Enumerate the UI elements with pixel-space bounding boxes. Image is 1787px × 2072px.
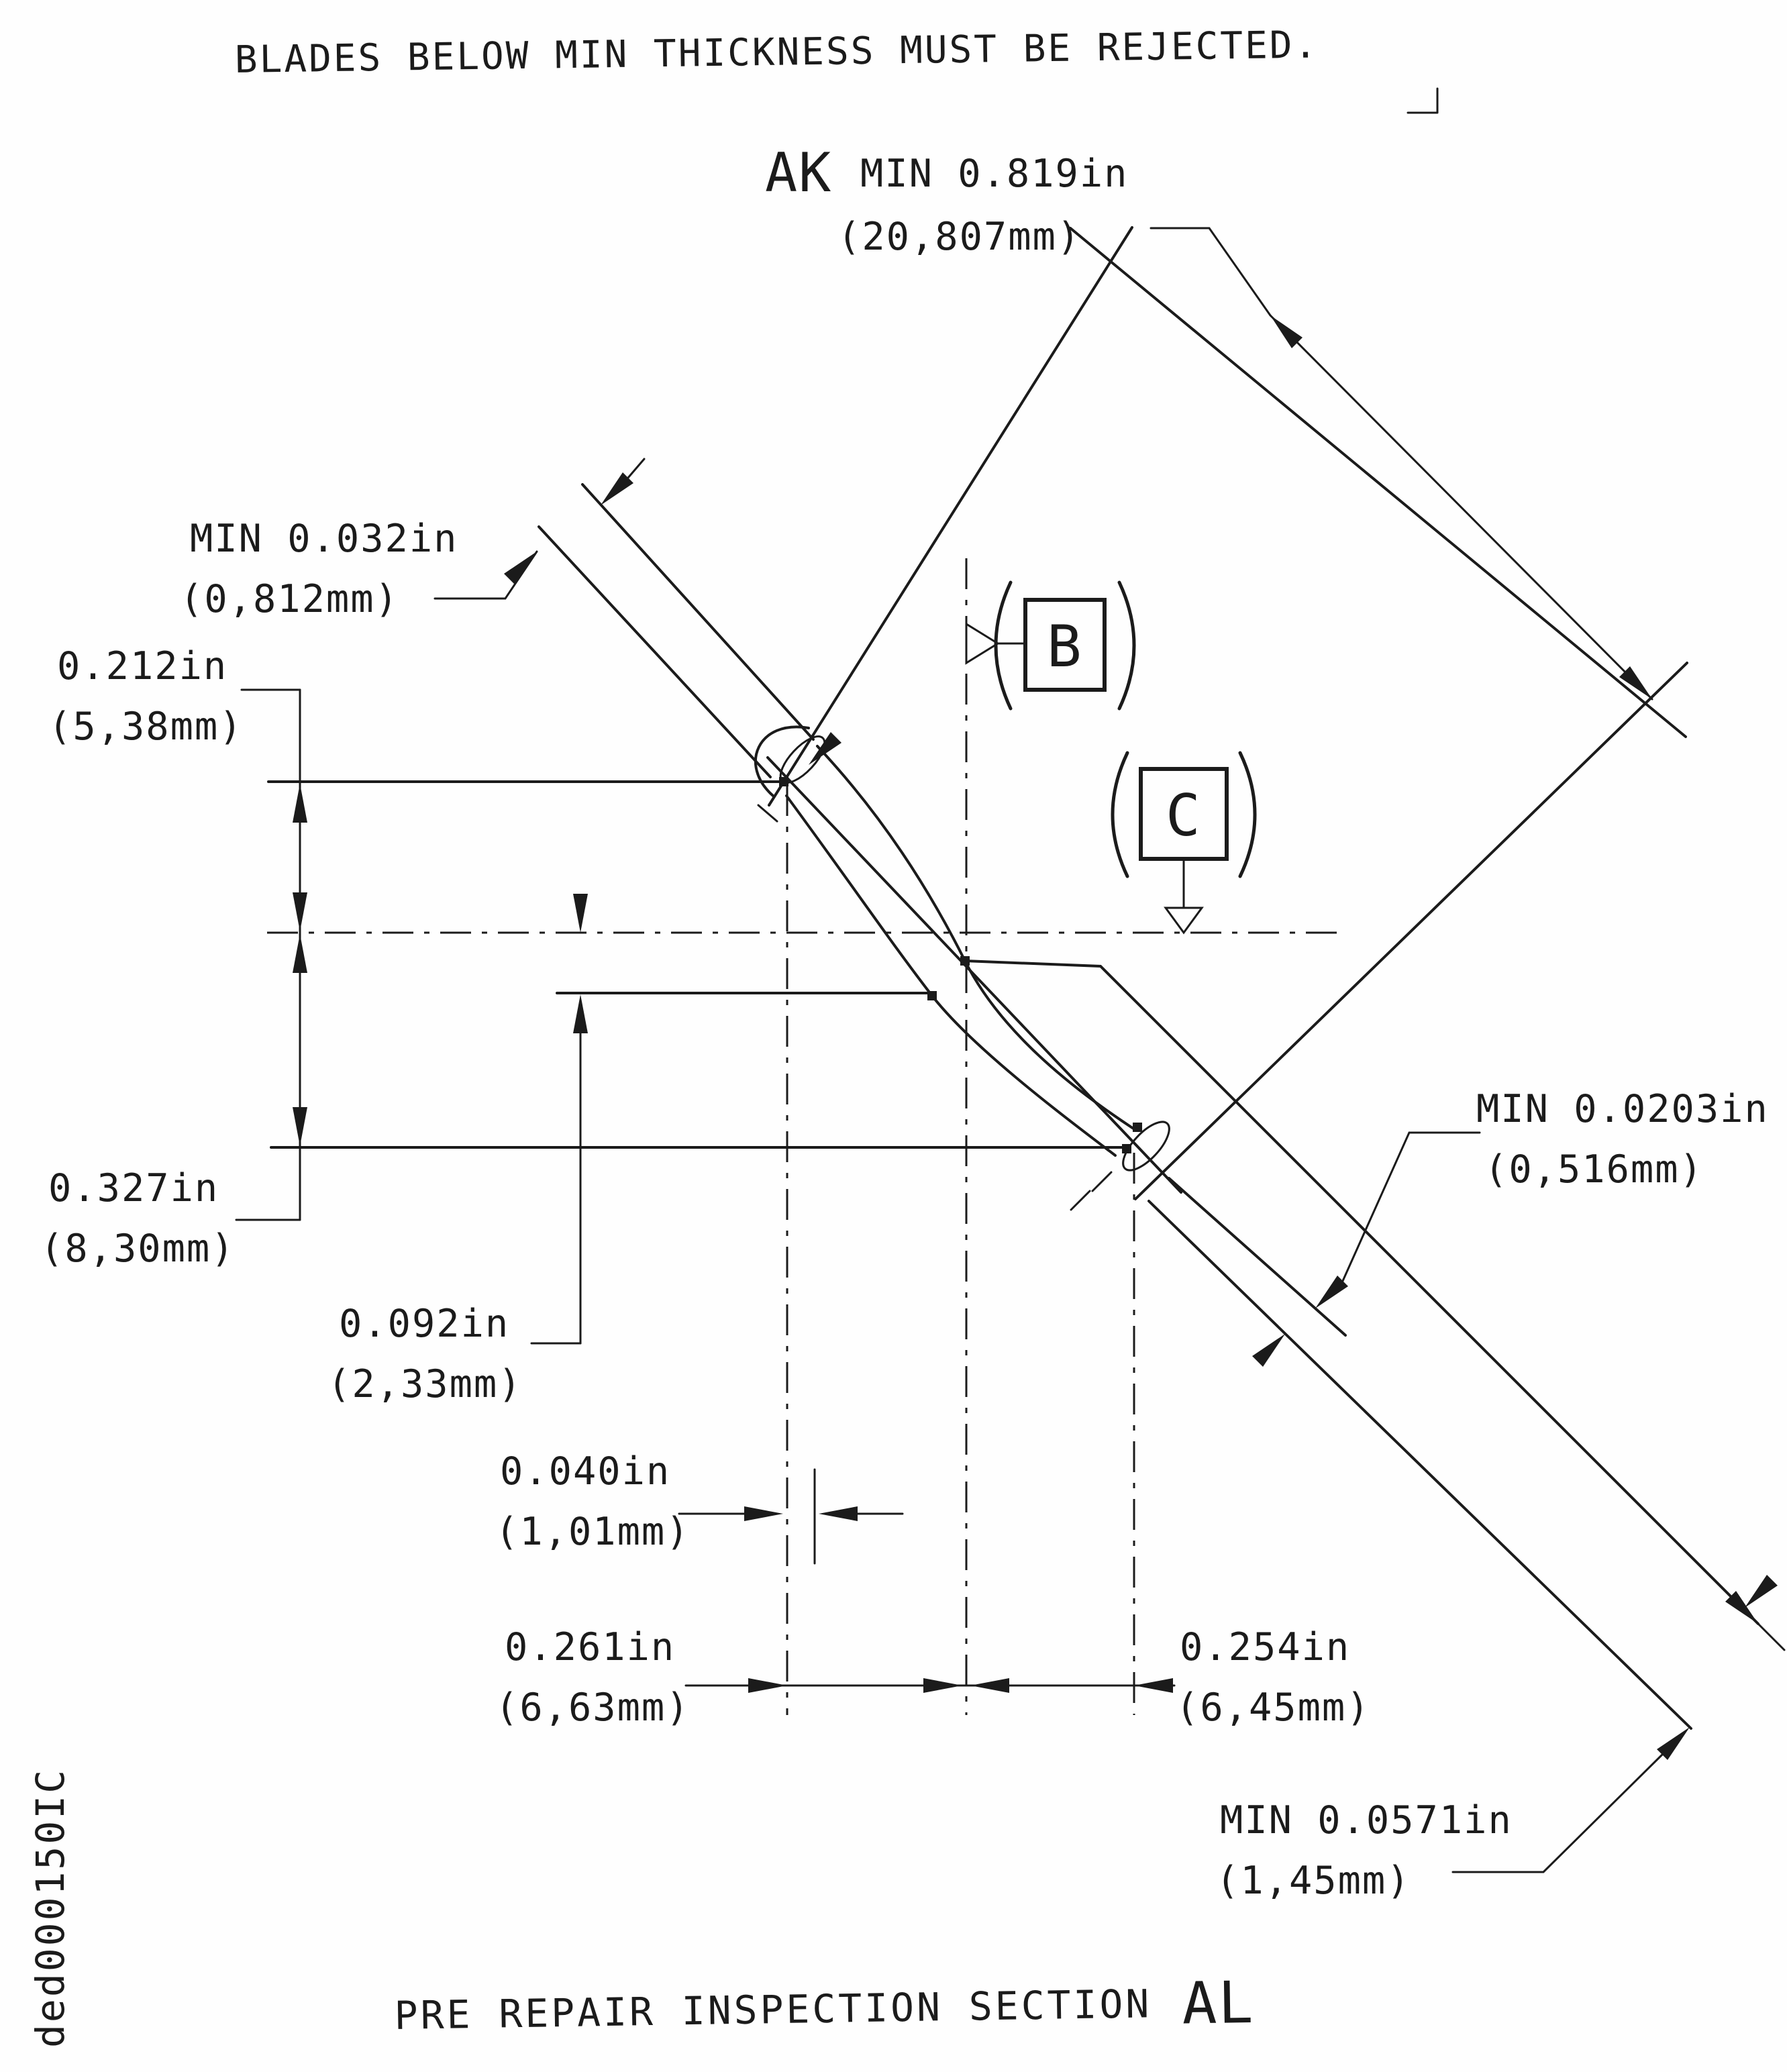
airfoil-upper-surface — [817, 746, 1135, 1130]
point-trailing-edge-lower — [1122, 1144, 1131, 1153]
dim-212-arrow-top — [293, 784, 307, 823]
doc-number: ded000150IC — [28, 1768, 73, 2048]
datum-c-letter: C — [1166, 782, 1201, 849]
pre-repair-inspection-drawing: BLADES BELOW MIN THICKNESS MUST BE REJEC… — [0, 0, 1787, 2072]
dim-092-metric: (2,33mm) — [327, 1362, 523, 1406]
rejection-note-text: BLADES BELOW MIN THICKNESS MUST BE REJEC… — [234, 23, 1319, 82]
dim-tip-min: MIN 0.032in (0,812mm) — [180, 459, 644, 621]
dim-327-value: 0.327in — [48, 1166, 219, 1210]
root-band — [965, 961, 1784, 1728]
trailing-edge-tick-2 — [1071, 1191, 1090, 1210]
dim-tip-min-arrow-tail — [628, 459, 644, 478]
dim-ak-leader — [1151, 228, 1270, 315]
dim-254-metric: (6,45mm) — [1176, 1686, 1371, 1730]
dim-327-arrow-top — [293, 934, 307, 973]
datum-c-triangle — [1166, 908, 1202, 933]
dim-040-metric: (1,01mm) — [495, 1510, 691, 1554]
dim-261-value: 0.261in — [505, 1625, 675, 1669]
dim-te-min-arrow-lower — [1252, 1334, 1285, 1367]
dim-092-value: 0.092in — [339, 1302, 509, 1346]
dim-root-min-arrow-upper — [1745, 1575, 1778, 1608]
dim-261-arrow-left — [748, 1678, 787, 1693]
dim-ak-value: MIN 0.819in — [860, 152, 1129, 196]
dim-261-arrow-right — [923, 1678, 962, 1693]
leading-edge-tick — [758, 805, 777, 821]
rejection-note: BLADES BELOW MIN THICKNESS MUST BE REJEC… — [234, 23, 1319, 82]
dim-254-value: 0.254in — [1180, 1625, 1350, 1669]
dim-root-min-metric: (1,45mm) — [1216, 1859, 1411, 1903]
dim-te-min-metric: (0,516mm) — [1484, 1147, 1704, 1192]
dim-092-arrow-top — [573, 894, 588, 933]
dim-tip-min-metric: (0,812mm) — [180, 577, 399, 621]
diamond-outline — [768, 227, 1687, 1199]
dim-040-arrow-right — [819, 1506, 858, 1521]
datum-b-paren-right — [1119, 582, 1134, 709]
dim-327-metric: (8,30mm) — [40, 1227, 236, 1271]
point-trailing-edge-upper — [1133, 1123, 1142, 1132]
dim-tip-min-arrow-lower — [504, 552, 537, 584]
datum-b-triangle — [966, 624, 998, 663]
dim-root-min-value: MIN 0.0571in — [1220, 1798, 1513, 1843]
datum-c-paren-left — [1113, 753, 1127, 876]
dim-212-arrow-bottom — [293, 892, 307, 931]
dim-092-arrow-bottom — [573, 994, 588, 1033]
dim-327: 0.327in (8,30mm) — [40, 934, 307, 1271]
trailing-strip-upper-line — [1169, 1178, 1345, 1335]
title-stray-tick — [1408, 89, 1437, 113]
dim-chain-261-254: 0.261in (6,63mm) 0.254in (6,45mm) — [495, 1625, 1371, 1730]
dim-212-metric: (5,38mm) — [48, 705, 244, 749]
dim-040: 0.040in (1,01mm) — [495, 1449, 903, 1554]
dim-254-arrow-left — [970, 1678, 1009, 1693]
dim-te-min-leader — [1343, 1133, 1480, 1281]
root-band-upper-line — [965, 961, 1758, 1624]
dim-ak-metric: (20,807mm) — [837, 215, 1081, 259]
dim-root-min: MIN 0.0571in (1,45mm) — [1216, 1575, 1778, 1903]
dim-212-value: 0.212in — [57, 644, 227, 688]
dim-tip-min-value: MIN 0.032in — [190, 517, 458, 561]
dim-261-metric: (6,63mm) — [495, 1686, 691, 1730]
diamond-edge-top-left — [769, 227, 1132, 805]
airfoil-lower-surface — [786, 796, 1115, 1155]
dim-040-arrow-left — [744, 1506, 783, 1521]
caption-text: PRE REPAIR INSPECTION SECTION — [394, 1981, 1152, 2038]
dim-ak: AK MIN 0.819in (20,807mm) — [765, 142, 1652, 699]
dim-092: 0.092in (2,33mm) — [327, 894, 588, 1406]
datum-b-paren-left — [996, 582, 1011, 709]
diamond-edge-bottom-left — [768, 758, 1181, 1192]
blade-tip-band — [539, 484, 841, 821]
datum-c-paren-right — [1240, 753, 1255, 876]
trailing-edge-tick-1 — [1092, 1172, 1111, 1191]
diamond-edge-top-right — [1070, 228, 1686, 737]
engineering-drawing-sheet: BLADES BELOW MIN THICKNESS MUST BE REJEC… — [0, 0, 1787, 2072]
section-id: AL — [1182, 1969, 1255, 2038]
datum-c-flag: C — [1113, 753, 1255, 933]
root-band-upper-ext — [1758, 1624, 1784, 1650]
dim-040-value: 0.040in — [500, 1449, 670, 1494]
dim-ak-prefix: AK — [765, 142, 832, 204]
dim-te-min-value: MIN 0.0203in — [1476, 1087, 1769, 1131]
dim-te-min: MIN 0.0203in (0,516mm) — [1252, 1087, 1769, 1367]
dim-ak-line — [1270, 315, 1652, 699]
drawing-caption: PRE REPAIR INSPECTION SECTION AL — [394, 1969, 1255, 2050]
dim-327-arrow-bottom — [293, 1107, 307, 1146]
datum-b-letter: B — [1047, 613, 1082, 680]
datum-b-flag: B — [966, 558, 1134, 1715]
dim-254-arrow-right — [1134, 1678, 1173, 1693]
